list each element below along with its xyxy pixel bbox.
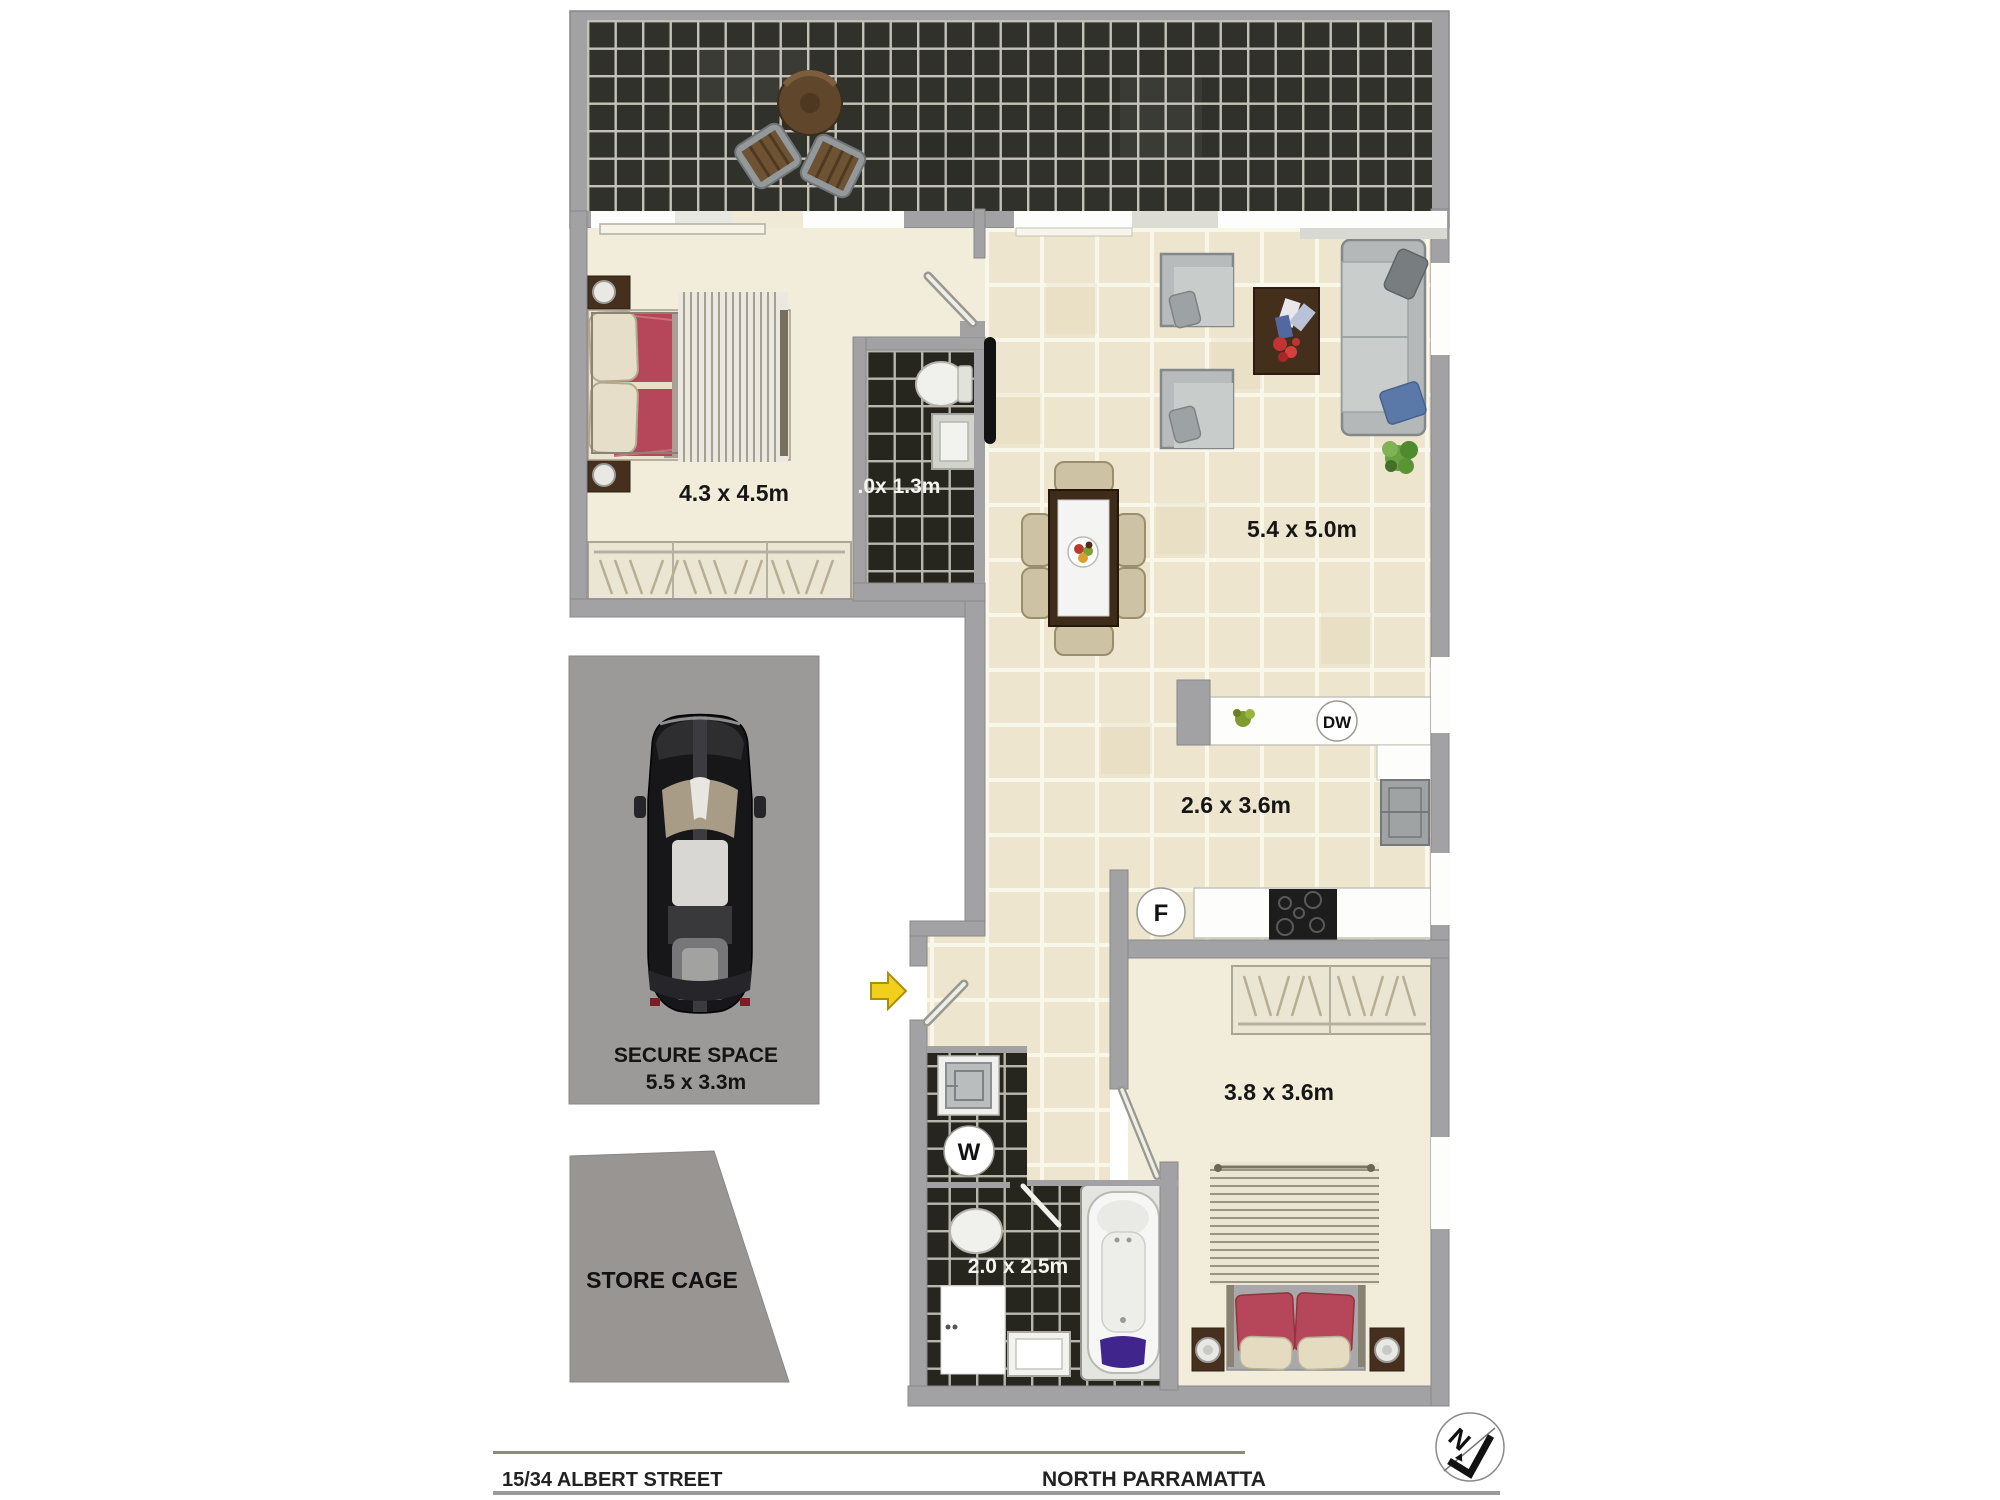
svg-text:2.0 x 2.5m: 2.0 x 2.5m: [968, 1255, 1068, 1278]
svg-text:F: F: [1154, 900, 1169, 927]
svg-text:5.5 x 3.3m: 5.5 x 3.3m: [646, 1071, 746, 1094]
svg-text:5.4 x 5.0m: 5.4 x 5.0m: [1247, 516, 1357, 542]
svg-text:NORTH PARRAMATTA: NORTH PARRAMATTA: [1042, 1468, 1266, 1491]
svg-text:SECURE SPACE: SECURE SPACE: [614, 1044, 778, 1067]
svg-text:3.8 x 3.6m: 3.8 x 3.6m: [1224, 1079, 1334, 1105]
svg-text:W: W: [958, 1139, 981, 1166]
svg-text:15/34 ALBERT STREET: 15/34 ALBERT STREET: [502, 1469, 722, 1491]
svg-text:2.6 x 3.6m: 2.6 x 3.6m: [1181, 792, 1291, 818]
svg-text:DW: DW: [1323, 713, 1352, 732]
svg-text:4.3 x 4.5m: 4.3 x 4.5m: [679, 480, 789, 506]
svg-text:.0x 1.3m: .0x 1.3m: [858, 475, 941, 498]
svg-text:STORE CAGE: STORE CAGE: [586, 1267, 738, 1293]
